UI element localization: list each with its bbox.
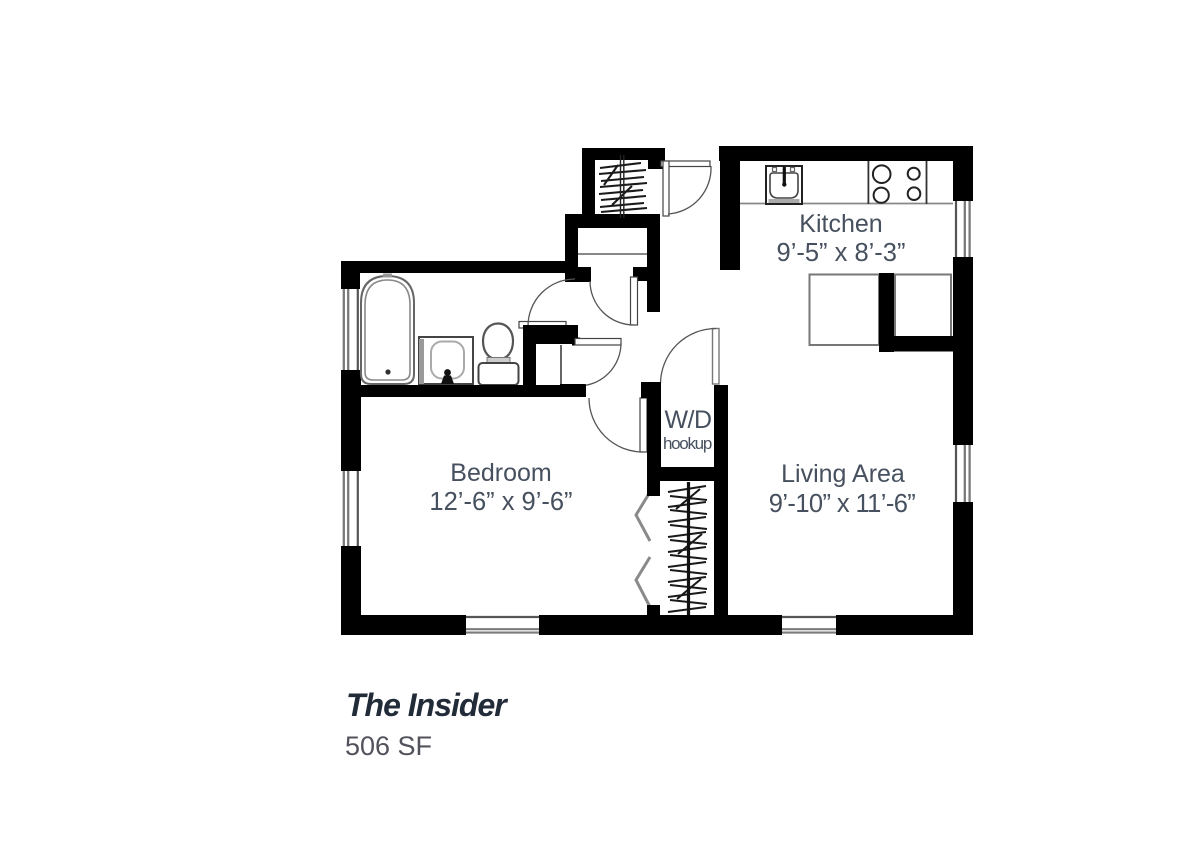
svg-text:W/D: W/D bbox=[664, 406, 711, 434]
svg-text:The Insider: The Insider bbox=[346, 687, 508, 723]
svg-text:hookup: hookup bbox=[663, 434, 712, 453]
svg-text:506 SF: 506 SF bbox=[345, 731, 432, 761]
svg-text:Bedroom: Bedroom bbox=[450, 459, 551, 487]
svg-text:12’-6” x 9’-6”: 12’-6” x 9’-6” bbox=[429, 488, 572, 516]
svg-text:9’-10” x 11’-6”: 9’-10” x 11’-6” bbox=[769, 490, 916, 518]
svg-text:Living Area: Living Area bbox=[781, 460, 905, 488]
svg-text:Kitchen: Kitchen bbox=[799, 210, 882, 238]
svg-text:9’-5” x 8’-3”: 9’-5” x 8’-3” bbox=[777, 239, 906, 267]
